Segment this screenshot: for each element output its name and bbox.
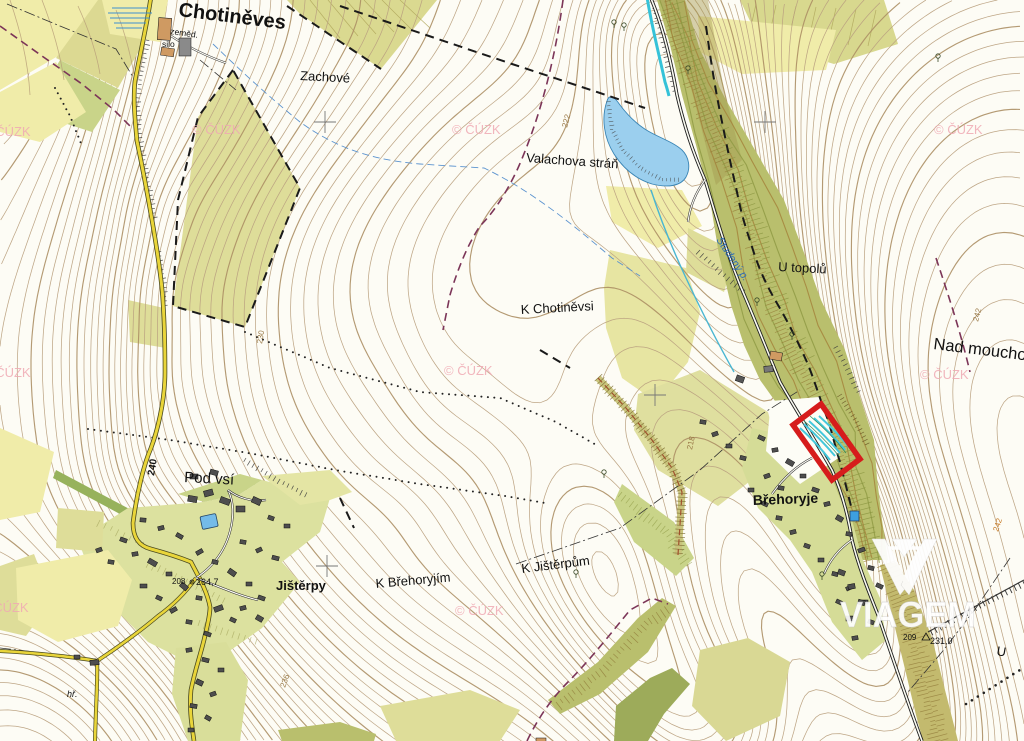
svg-text:Jištěrpy: Jištěrpy [276, 578, 327, 593]
svg-text:silo: silo [162, 39, 175, 49]
svg-text:© ČÚZK: © ČÚZK [455, 603, 504, 618]
svg-text:© ČÚZK: © ČÚZK [0, 600, 29, 615]
svg-text:© ČÚZK: © ČÚZK [452, 122, 501, 137]
svg-text:U topolů: U topolů [778, 259, 827, 277]
svg-text:VIAGEM: VIAGEM [840, 594, 976, 635]
svg-text:© ČÚZK: © ČÚZK [192, 122, 241, 137]
svg-text:Pod vsí: Pod vsí [184, 469, 236, 489]
svg-text:Zachové: Zachové [300, 68, 351, 86]
svg-text:© ČÚZK: © ČÚZK [0, 365, 31, 380]
svg-text:© ČÚZK: © ČÚZK [0, 124, 31, 139]
svg-text:hř.: hř. [67, 689, 78, 699]
svg-text:© ČÚZK: © ČÚZK [934, 122, 983, 137]
svg-text:231,0: 231,0 [930, 636, 953, 646]
svg-text:208: 208 [172, 577, 186, 586]
svg-text:© ČÚZK: © ČÚZK [920, 367, 969, 382]
svg-text:264,7: 264,7 [196, 577, 219, 587]
svg-text:Břehoryje: Břehoryje [753, 490, 819, 508]
svg-text:© ČÚZK: © ČÚZK [444, 363, 493, 378]
